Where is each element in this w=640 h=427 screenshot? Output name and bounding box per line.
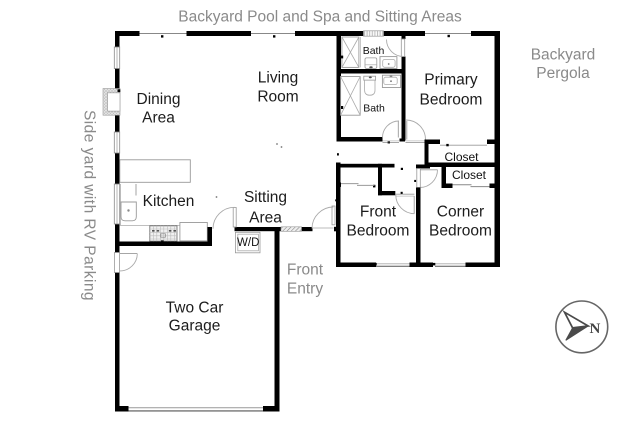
svg-text:BackyardPergola: BackyardPergola [531, 47, 596, 83]
svg-text:Closet: Closet [452, 168, 487, 182]
svg-text:Side yard with RV Parking: Side yard with RV Parking [81, 110, 98, 301]
svg-text:Two CarGarage: Two CarGarage [166, 300, 224, 335]
svg-text:Bath: Bath [363, 45, 385, 57]
svg-text:Backyard Pool and Spa and Sitt: Backyard Pool and Spa and Sitting Areas [178, 9, 462, 26]
svg-text:N: N [590, 321, 601, 337]
svg-text:Bath: Bath [363, 103, 385, 115]
svg-text:Kitchen: Kitchen [143, 193, 195, 210]
svg-text:DiningArea: DiningArea [137, 91, 181, 127]
svg-text:W/D: W/D [237, 237, 259, 249]
svg-text:Closet: Closet [444, 150, 479, 164]
